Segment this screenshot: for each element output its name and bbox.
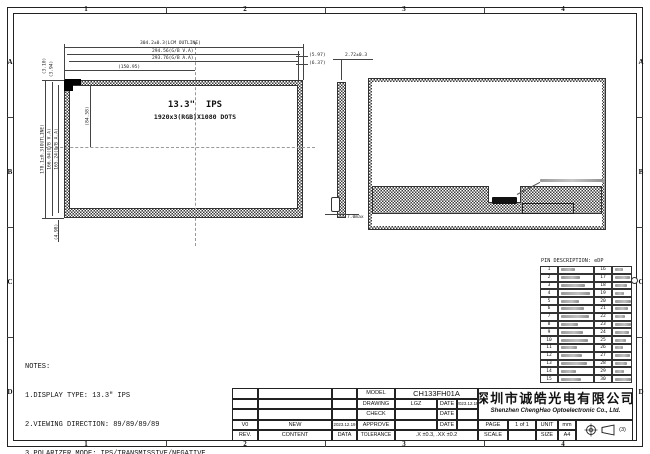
pin-number: 10 <box>540 336 558 344</box>
extension-line <box>303 44 304 80</box>
pin-name-smudge <box>612 336 632 344</box>
pin-name-smudge <box>612 328 632 336</box>
pin-row: 1429 <box>540 367 632 375</box>
grid-tick <box>637 227 643 228</box>
grid-tick <box>484 441 485 447</box>
pin-number: 26 <box>594 344 612 352</box>
grid-tick <box>484 7 485 13</box>
pin-number: 7 <box>540 313 558 321</box>
pin-number: 17 <box>594 274 612 282</box>
panel-size-label: 13.3" IPS <box>120 100 270 110</box>
pin-name-smudge <box>558 336 594 344</box>
pin-name-smudge <box>558 328 594 336</box>
size-label: SIZE <box>536 430 558 441</box>
company-name-cn: 深圳市诚皓光电有限公司 <box>478 392 633 407</box>
grid-tick <box>7 337 13 338</box>
model-value: CH133FH01A <box>395 388 478 399</box>
check-value-empty <box>395 409 437 420</box>
dim-right-top: (5.97) <box>309 53 326 58</box>
grid-row-label: C <box>3 278 17 286</box>
pin-name-smudge <box>612 274 632 282</box>
pin-name-smudge <box>612 313 632 321</box>
grid-tick <box>325 7 326 13</box>
pin-name-smudge <box>558 266 594 274</box>
grid-col-label: 4 <box>556 5 570 13</box>
grid-tick <box>637 337 643 338</box>
unit-label: UNIT <box>536 420 558 431</box>
grid-col-label: 3 <box>397 440 411 448</box>
pin-number: 14 <box>540 367 558 375</box>
date-label: DATE <box>437 409 457 420</box>
pin-row: 419 <box>540 289 632 297</box>
pin-table: 1162173184195206217228239241025112612271… <box>540 266 632 384</box>
dim-aa-width: 293.76(G/B A.A) <box>152 56 194 61</box>
drawing-value: LGZ <box>395 399 437 410</box>
dim-aa-height: 165.24(G/B A.A) <box>54 128 59 170</box>
pin-name-smudge <box>558 367 594 375</box>
pin-number: 3 <box>540 282 558 290</box>
dim-line <box>64 70 195 71</box>
approve-date-empty <box>457 420 478 431</box>
dim-outline-height: 178.1±0.3(OUTLINE) <box>41 124 46 174</box>
tolerance-value: .X ±0.3, .XX ±0.2 <box>395 430 478 441</box>
dim-line <box>296 64 308 65</box>
dim-bottom-max: 7.0max <box>347 215 364 220</box>
note-line: 2.VIEWING DIRECTION: 89/89/89/89 <box>25 421 227 431</box>
company-name-en: Shenzhen ChengHao Optoelectronic Co., Lt… <box>491 407 621 415</box>
vertical-centerline <box>195 42 196 246</box>
scale-value <box>508 430 536 441</box>
pin-name-smudge <box>558 297 594 305</box>
approve-value-empty <box>395 420 437 431</box>
pin-name-smudge <box>612 282 632 290</box>
pin-name-smudge <box>612 367 632 375</box>
date-label: DATE <box>437 399 457 410</box>
pin-name-smudge <box>612 352 632 360</box>
dim-line <box>296 56 308 57</box>
pin-number: 1 <box>540 266 558 274</box>
dim-inner-height: (84.58) <box>86 106 91 125</box>
data-cell-empty <box>332 409 357 420</box>
grid-col-label: 1 <box>79 5 93 13</box>
pin-name-smudge <box>558 274 594 282</box>
panel-resolution-label: 1920x3(RGB)X1080 DOTS <box>110 113 280 121</box>
rev-header: REV. <box>232 430 258 441</box>
third-angle-projection-icon <box>583 423 617 437</box>
model-label: MODEL <box>357 388 395 399</box>
pin-row: 1328 <box>540 360 632 368</box>
rev-cell-empty <box>232 409 258 420</box>
content-cell-empty <box>258 388 332 399</box>
pin-number: 9 <box>540 328 558 336</box>
pin-number: 29 <box>594 367 612 375</box>
pin-number: 8 <box>540 321 558 329</box>
grid-tick <box>7 117 13 118</box>
pin-number: 24 <box>594 328 612 336</box>
pin-number: 2 <box>540 274 558 282</box>
notes: NOTES: 1.DISPLAY TYPE: 13.3" IPS 2.VIEWI… <box>25 344 227 454</box>
approve-label: APPROVE <box>357 420 395 431</box>
rev-value: V0 <box>232 420 258 431</box>
pin-name-smudge <box>612 321 632 329</box>
note-line: NOTES: <box>25 363 227 373</box>
date-label: DATE <box>437 420 457 431</box>
rev-cell-empty <box>232 388 258 399</box>
pin-row: 722 <box>540 313 632 321</box>
edp-connector <box>492 197 517 204</box>
dim-top-left-b: (3.94) <box>50 61 55 78</box>
rev-content-value: NEW <box>258 420 332 431</box>
shield-sub-outline <box>522 203 574 214</box>
grid-col-label: 3 <box>397 5 411 13</box>
dim-line <box>69 61 298 62</box>
grid-tick <box>7 227 13 228</box>
pin-row: 318 <box>540 282 632 290</box>
grid-row-label: A <box>634 58 648 66</box>
data-header: DATA <box>332 430 357 441</box>
extension-line <box>64 44 65 80</box>
revision-bubble <box>631 277 638 284</box>
content-cell-empty <box>258 409 332 420</box>
pin-row: 924 <box>540 328 632 336</box>
drawing-date-value: 2023.12.19 <box>457 399 478 410</box>
pin-name-smudge <box>612 305 632 313</box>
grid-row-label: A <box>3 58 17 66</box>
dim-right-bottom: (6.37) <box>309 61 326 66</box>
extension-line <box>341 59 342 80</box>
projection-angle-note: (3) <box>619 427 626 433</box>
pin-name-smudge <box>612 344 632 352</box>
pin-row: 621 <box>540 305 632 313</box>
pin-name-smudge <box>558 360 594 368</box>
pin-name-smudge <box>558 282 594 290</box>
content-header: CONTENT <box>258 430 332 441</box>
pin-number: 25 <box>594 336 612 344</box>
pin-name-smudge <box>612 375 632 383</box>
grid-row-label: D <box>3 388 17 396</box>
grid-tick <box>637 117 643 118</box>
pin-row: 1530 <box>540 375 632 383</box>
pin-number: 18 <box>594 282 612 290</box>
pixel-one-mark <box>64 85 73 91</box>
pin-number: 28 <box>594 360 612 368</box>
dim-outline-width: 304.2±0.3(LCM OUTLINE) <box>140 41 201 46</box>
extension-line <box>42 218 64 219</box>
data-cell-empty <box>332 388 357 399</box>
pin-name-smudge <box>558 344 594 352</box>
grid-row-label: B <box>634 168 648 176</box>
pin-name-smudge <box>612 289 632 297</box>
connector-label-smudge <box>540 179 604 182</box>
pin-number: 5 <box>540 297 558 305</box>
drawing-label: DRAWING <box>357 399 395 410</box>
pin-number: 27 <box>594 352 612 360</box>
note-line: 1.DISPLAY TYPE: 13.3" IPS <box>25 392 227 402</box>
pin-name-smudge <box>612 266 632 274</box>
pin-row: 116 <box>540 266 632 274</box>
rev-cell-empty <box>232 399 258 410</box>
check-date-empty <box>457 409 478 420</box>
grid-tick <box>325 441 326 447</box>
check-label: CHECK <box>357 409 395 420</box>
grid-col-label: 2 <box>238 440 252 448</box>
pin-row: 217 <box>540 274 632 282</box>
dim-top-left-a: (3.10) <box>43 58 48 75</box>
pin-number: 22 <box>594 313 612 321</box>
pin-number: 16 <box>594 266 612 274</box>
dim-line <box>333 59 373 60</box>
tolerance-label: TOLERANCE <box>357 430 395 441</box>
pin-number: 20 <box>594 297 612 305</box>
pin-number: 23 <box>594 321 612 329</box>
data-cell-empty <box>332 399 357 410</box>
pin-number: 15 <box>540 375 558 383</box>
pin-number: 13 <box>540 360 558 368</box>
pin-number: 21 <box>594 305 612 313</box>
pin-number: 30 <box>594 375 612 383</box>
dim-va-width: 294.56(G/B V.A) <box>152 49 194 54</box>
dim-bottom-left: (4.98) <box>55 224 60 241</box>
grid-col-label: 4 <box>556 440 570 448</box>
pin-number: 6 <box>540 305 558 313</box>
company-box: 深圳市诚皓光电有限公司 Shenzhen ChengHao Optoelectr… <box>478 388 633 420</box>
note-line: 3.POLARIZER MODE: IPS/TRANSMISSIVE/NEGAT… <box>25 450 227 454</box>
grid-row-label: D <box>634 388 648 396</box>
pin-row: 823 <box>540 321 632 329</box>
grid-col-label: 2 <box>238 5 252 13</box>
pin-name-smudge <box>558 375 594 383</box>
pin-number: 19 <box>594 289 612 297</box>
scale-label: SCALE <box>478 430 508 441</box>
side-view-connector-bump <box>331 197 340 212</box>
pin-name-smudge <box>558 321 594 329</box>
horizontal-centerline <box>40 147 315 148</box>
grid-tick <box>166 7 167 13</box>
pin-row: 520 <box>540 297 632 305</box>
dim-thickness: 2.72±0.3 <box>345 53 367 58</box>
pin-number: 11 <box>540 344 558 352</box>
drawing-sheet: 1 2 3 4 1 2 3 4 A B C D A B C D 13.3" IP… <box>0 0 650 454</box>
pin-name-smudge <box>558 352 594 360</box>
pin-row: 1025 <box>540 336 632 344</box>
rev-date-value: 2023.12.19 <box>332 420 357 431</box>
pin-name-smudge <box>612 297 632 305</box>
page-value: 1 of 1 <box>508 420 536 431</box>
size-value: A4 <box>558 430 576 441</box>
dim-va-height: 166.04(G/B V.A) <box>48 128 53 170</box>
extension-line <box>42 80 64 81</box>
pin-row: 1227 <box>540 352 632 360</box>
content-cell-empty <box>258 399 332 410</box>
pin-name-smudge <box>558 313 594 321</box>
pin-name-smudge <box>558 289 594 297</box>
grid-row-label: B <box>3 168 17 176</box>
pin-number: 12 <box>540 352 558 360</box>
pin-row: 1126 <box>540 344 632 352</box>
projection-symbol-cell: (3) <box>576 420 633 441</box>
pin-name-smudge <box>558 305 594 313</box>
page-label: PAGE <box>478 420 508 431</box>
unit-value: mm <box>558 420 576 431</box>
dim-half-width: (150.95) <box>118 65 140 70</box>
pin-number: 4 <box>540 289 558 297</box>
pin-name-smudge <box>612 360 632 368</box>
pin-table-title: PIN DESCRIPTION: eDP <box>541 258 603 264</box>
